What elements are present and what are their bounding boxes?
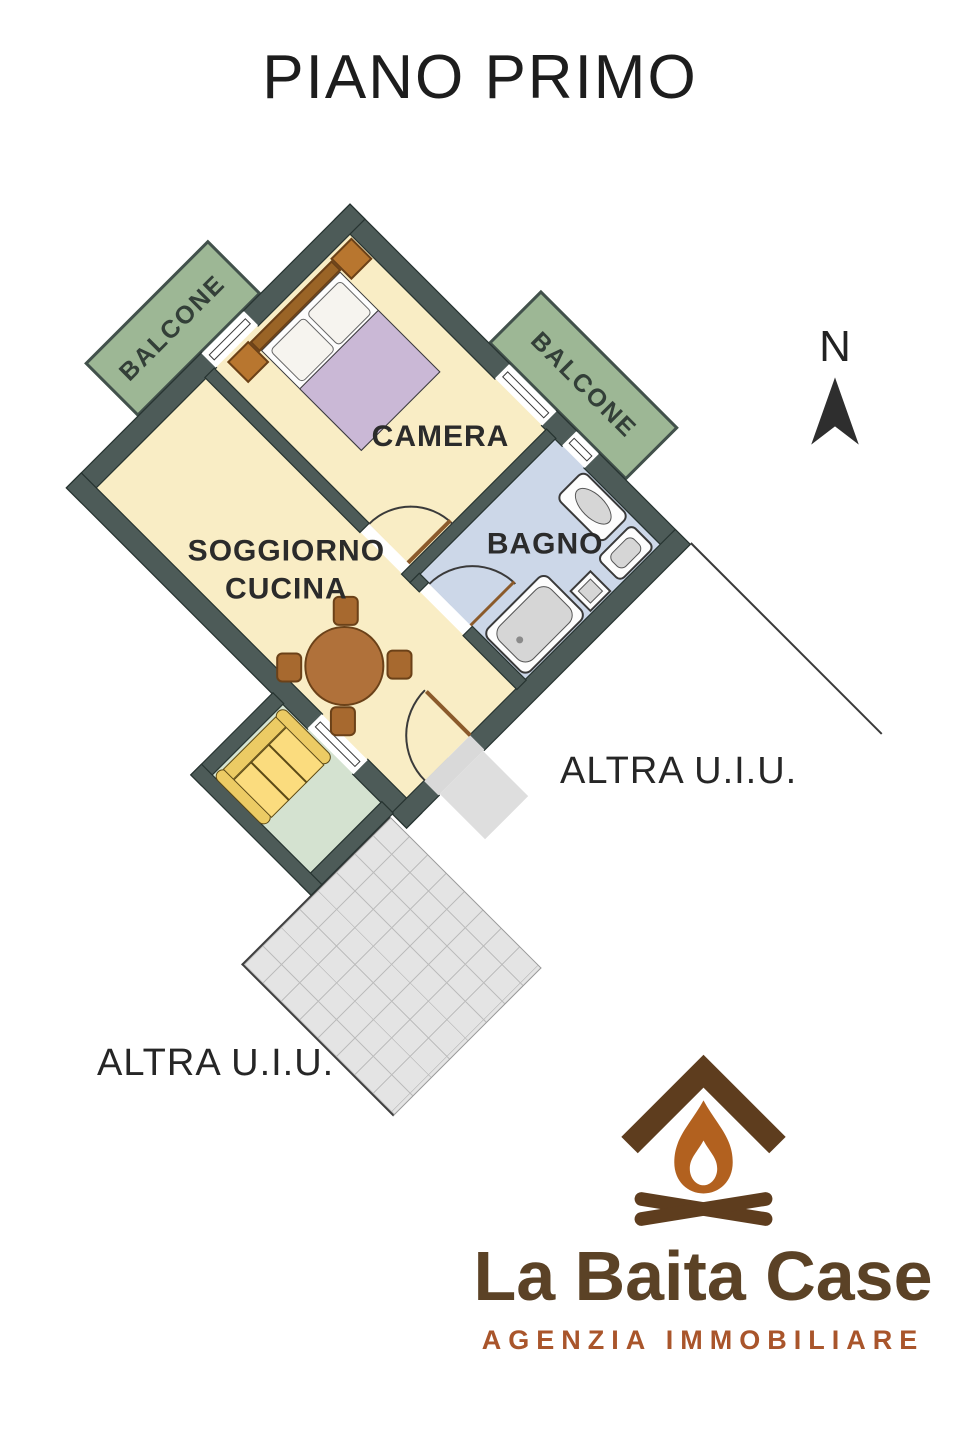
- agency-logo: La Baita Case AGENZIA IMMOBILIARE: [455, 1020, 951, 1356]
- chair: [330, 706, 356, 736]
- soggiorno-line2: CUCINA: [225, 572, 348, 605]
- soggiorno-label: SOGGIORNOCUCINA: [188, 532, 385, 607]
- bagno-label: BAGNO: [487, 526, 604, 564]
- chair: [386, 650, 412, 680]
- property-boundary-line: [690, 542, 882, 734]
- other-unit-label-bottom: ALTRA U.I.U.: [97, 1042, 334, 1085]
- camera-label: CAMERA: [372, 418, 510, 456]
- soggiorno-line1: SOGGIORNO: [188, 534, 385, 567]
- agency-name: La Baita Case: [455, 1241, 951, 1311]
- campfire-house-icon: [591, 1020, 816, 1230]
- other-unit-label-right: ALTRA U.I.U.: [560, 750, 797, 793]
- north-arrow-icon: [800, 372, 870, 450]
- page-title: PIANO PRIMO: [0, 42, 960, 113]
- bidet-inner: [578, 578, 603, 603]
- north-label: N: [800, 322, 870, 372]
- chair: [276, 652, 302, 682]
- compass: N: [800, 322, 870, 455]
- agency-tagline: AGENZIA IMMOBILIARE: [455, 1325, 951, 1356]
